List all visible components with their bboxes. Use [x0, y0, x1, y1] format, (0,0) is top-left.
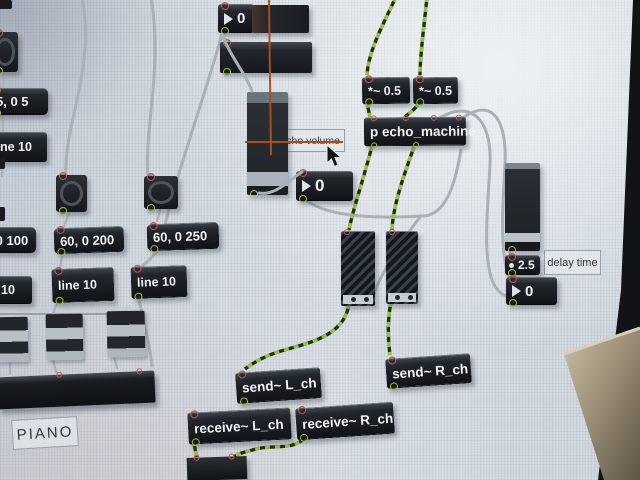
crosshair-lines — [245, 0, 343, 155]
patch-cables-over — [0, 0, 640, 480]
patch-canvas: 5, 0 5 line 10 60, 0 100 60, 0 200 60, 0… — [0, 0, 640, 480]
patcher-window: 5, 0 5 line 10 60, 0 100 60, 0 200 60, 0… — [0, 0, 640, 480]
mouse-cursor-icon — [326, 145, 346, 169]
gray-cables — [222, 34, 302, 193]
